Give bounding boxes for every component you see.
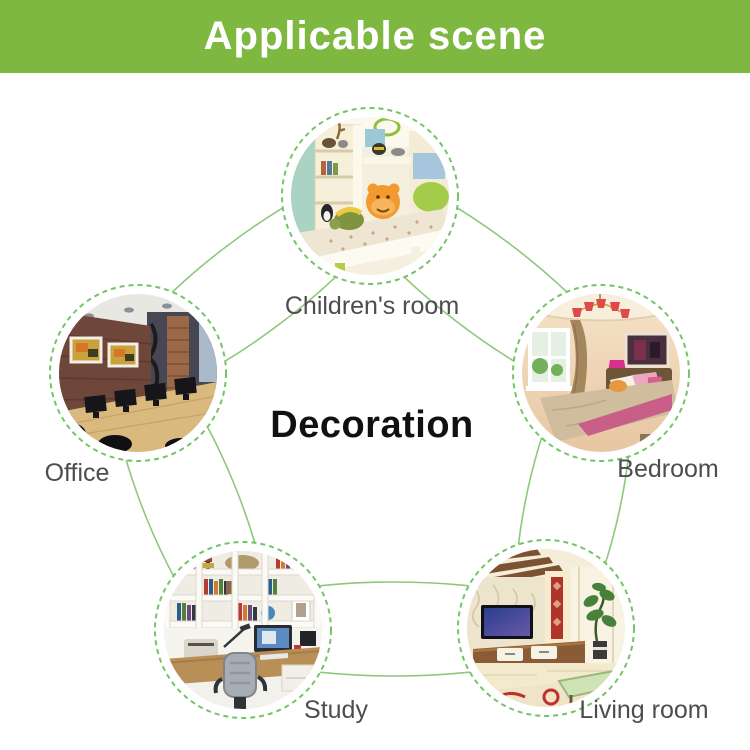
children-room-label: Children's room xyxy=(285,292,459,321)
living-room-photo xyxy=(467,549,625,707)
office-label: Office xyxy=(45,459,110,488)
scene-diagram xyxy=(0,0,750,750)
living-room-label: Living room xyxy=(579,696,708,725)
study-label: Study xyxy=(304,696,368,725)
children-room-photo xyxy=(291,117,449,275)
bedroom-photo xyxy=(522,294,680,452)
page: Applicable scene xyxy=(0,0,750,750)
center-label: Decoration xyxy=(270,404,473,447)
bedroom-label: Bedroom xyxy=(617,455,718,484)
study-photo xyxy=(164,551,322,709)
